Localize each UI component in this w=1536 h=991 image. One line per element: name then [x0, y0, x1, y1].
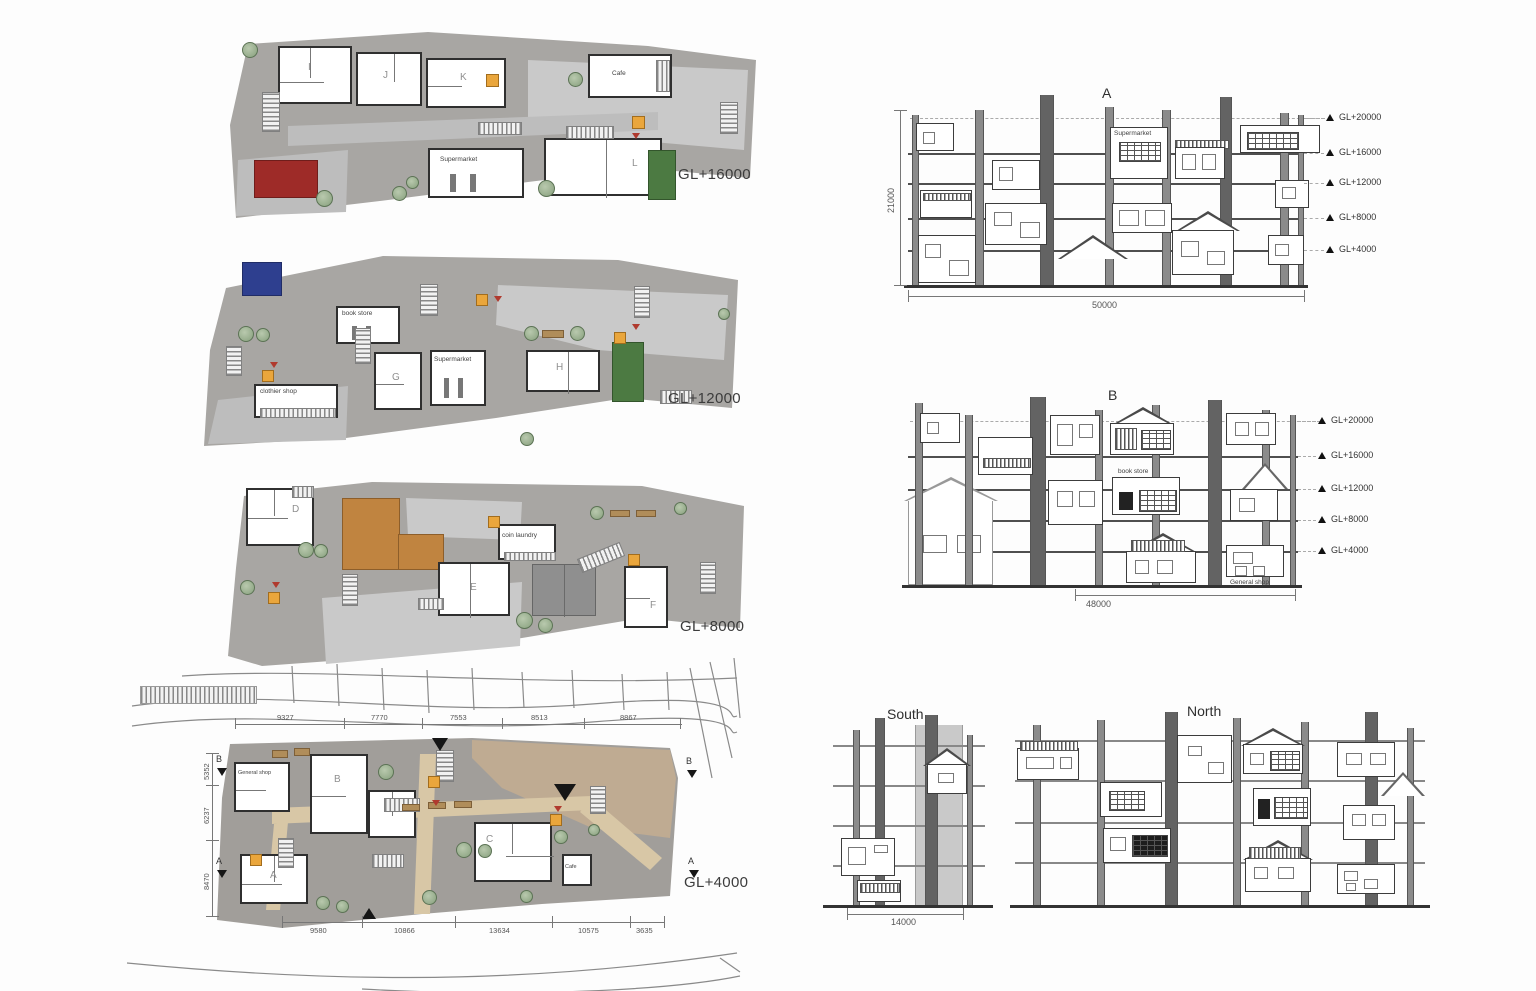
level-label: GL+4000 [1339, 244, 1376, 254]
roof-hatch [1020, 741, 1078, 751]
level-marker: GL+8000 [1326, 212, 1376, 222]
window [1253, 566, 1265, 576]
window [1020, 222, 1040, 238]
level-marker: GL+20000 [1318, 415, 1373, 425]
section-room-book-store [1112, 477, 1180, 515]
tree-icon [316, 190, 333, 207]
unit-label-i: I [308, 62, 311, 73]
section-b-title: B [1108, 387, 1117, 403]
column [965, 415, 973, 585]
book-store-label: book store [1118, 468, 1148, 475]
wall [376, 384, 404, 385]
level-label: GL+20000 [1331, 415, 1373, 425]
level-triangle-icon [1326, 114, 1334, 121]
window [999, 167, 1013, 181]
section-room [1275, 180, 1309, 208]
window [1364, 879, 1378, 889]
window [1079, 424, 1093, 438]
level-leader [1304, 218, 1324, 219]
section-room [918, 235, 976, 283]
section-width-dim: 48000 [1086, 599, 1111, 609]
site-plan-gl4000: General shop B A C Cafe [122, 658, 742, 991]
elevation-room [1243, 744, 1303, 774]
dim-label: 7770 [371, 713, 388, 722]
section-marker-icon [687, 770, 697, 778]
window-grid [1270, 751, 1300, 771]
window [1057, 491, 1073, 507]
window [1275, 244, 1289, 256]
wall [242, 884, 282, 885]
wall [428, 86, 462, 87]
gray-roof [532, 564, 596, 616]
dim-tick [664, 916, 665, 928]
level-triangle-icon [1326, 149, 1334, 156]
road-line [182, 673, 737, 680]
section-marker-icon [217, 870, 227, 878]
tree-icon [238, 326, 254, 342]
window [923, 535, 947, 553]
window [1344, 871, 1358, 881]
unit-label-f: F [650, 600, 656, 611]
red-arrow-marker [632, 133, 640, 139]
tree-icon [520, 890, 533, 903]
tree-icon [588, 824, 600, 836]
window [1057, 424, 1073, 446]
window [1181, 241, 1199, 257]
elevation-room [1337, 742, 1395, 777]
stairs [566, 126, 614, 139]
bench [272, 750, 288, 758]
red-arrow-marker [270, 362, 278, 368]
roof-ridge [564, 565, 565, 617]
dim-tick [344, 718, 345, 729]
tree-icon [256, 328, 270, 342]
dim-label: 10866 [394, 926, 415, 935]
window [1135, 560, 1149, 574]
level-triangle-icon [1326, 179, 1334, 186]
shelving-grid [1119, 142, 1161, 162]
lot-lines [292, 664, 669, 713]
tree-icon [718, 308, 730, 320]
level-leader [1304, 118, 1324, 119]
cafe-label: Cafe [565, 864, 577, 870]
section-room [1172, 230, 1234, 275]
dim-tick [206, 840, 219, 841]
book-store-label: book store [342, 310, 372, 317]
window-grid [1109, 791, 1145, 811]
planter [542, 330, 564, 338]
general-shop-label: General shop [1230, 579, 1269, 586]
unit-label-j: J [383, 70, 388, 81]
tree-icon [456, 842, 472, 858]
stairs [262, 92, 280, 132]
awning-hatch [860, 883, 900, 893]
unit-label-h: H [556, 362, 563, 373]
window [1233, 552, 1253, 564]
red-arrow-marker [432, 800, 440, 806]
level-triangle-icon [1318, 516, 1326, 523]
red-roof [254, 160, 318, 198]
room-unit-b [310, 754, 368, 834]
dim-tick [422, 718, 423, 729]
dim-label: 8867 [620, 713, 637, 722]
dim-tick [963, 908, 964, 920]
unit-label-g: G [392, 372, 400, 383]
dim-tick [235, 718, 236, 729]
tree-icon [298, 542, 314, 558]
dim-tick [847, 908, 848, 920]
road-line [127, 953, 737, 978]
stairs [418, 598, 444, 610]
column [1407, 728, 1414, 905]
tree-icon [520, 432, 534, 446]
level-label: GL+16000 [1339, 147, 1381, 157]
floor-plan-gl8000: D coin laundry E F [222, 478, 747, 668]
rack-hatch [260, 408, 336, 418]
dim-label: 3635 [636, 926, 653, 935]
bookshelf-grid [1139, 490, 1177, 512]
section-room [978, 437, 1033, 475]
elevation-room [841, 838, 895, 876]
section-width-dim: 50000 [1092, 300, 1117, 310]
tree-icon [524, 326, 539, 341]
window [1278, 867, 1294, 879]
section-room [1226, 413, 1276, 445]
elevator-marker [486, 74, 499, 87]
elevation-room [1343, 805, 1395, 840]
window [1060, 757, 1072, 769]
level-marker: GL+16000 [1318, 450, 1373, 460]
red-arrow-marker [554, 806, 562, 812]
room-unit-j [356, 52, 422, 106]
elevation-width-dim: 14000 [891, 917, 916, 927]
dim-label: 5352 [202, 763, 211, 780]
section-marker-b-left: B [216, 754, 222, 764]
level-label: GL+12000 [1339, 177, 1381, 187]
wall [506, 856, 554, 857]
stair-hatch [983, 458, 1031, 468]
level-triangle-icon [1318, 485, 1326, 492]
tree-icon [590, 506, 604, 520]
column [967, 735, 973, 905]
wall [274, 490, 275, 516]
dim-tick [1295, 589, 1296, 601]
level-leader [1298, 456, 1316, 457]
window [1255, 422, 1269, 436]
section-room [1048, 480, 1103, 525]
level-leader [1298, 489, 1316, 490]
shelf-hatch [656, 60, 670, 92]
dim-tick [908, 290, 909, 302]
level-marker: GL+16000 [1326, 147, 1381, 157]
level-label: GL+4000 [1331, 545, 1368, 555]
elevation-room [1177, 735, 1232, 783]
plan-level-label-gl16000: GL+16000 [678, 166, 751, 183]
core-column [925, 715, 938, 905]
dim-tick [894, 285, 907, 286]
shelf [470, 174, 476, 192]
window [1208, 762, 1224, 774]
section-room [1175, 147, 1225, 179]
window [1026, 757, 1054, 769]
stairs [720, 102, 738, 134]
column [975, 110, 984, 285]
shelf [444, 378, 449, 398]
planter [610, 510, 630, 517]
elevator-marker [550, 814, 562, 826]
section-room [1240, 125, 1320, 153]
shelf [450, 174, 456, 192]
orange-roof [342, 498, 400, 570]
section-height-dim: 21000 [886, 188, 896, 213]
stairs [342, 574, 358, 606]
ground-line [904, 285, 1308, 288]
window [1250, 753, 1264, 765]
dimension-line [282, 922, 664, 923]
room-cafe [562, 854, 592, 886]
core-column [875, 718, 885, 905]
dimension-line [212, 753, 213, 916]
wall [248, 518, 288, 519]
level-marker: GL+4000 [1318, 545, 1368, 555]
supermarket-label: Supermarket [1114, 130, 1151, 137]
level-leader [1298, 421, 1316, 422]
gable-roof [1245, 466, 1285, 489]
tree-icon [422, 890, 437, 905]
railing-hatch [923, 193, 971, 201]
dim-label: 6237 [202, 807, 211, 824]
tree-icon [674, 502, 687, 515]
level-label: GL+8000 [1339, 212, 1376, 222]
elevation-room [1103, 828, 1171, 863]
unit-label-b: B [334, 774, 341, 785]
wall [626, 598, 650, 599]
dim-tick [1075, 589, 1076, 601]
unit-label-a: A [270, 870, 277, 881]
dimension-line [900, 110, 901, 285]
tree-icon [516, 612, 533, 629]
tree-icon [538, 618, 553, 633]
dark-panel [1258, 799, 1270, 819]
shop-label: clothier shop [260, 388, 297, 395]
window [994, 212, 1012, 226]
shelf [458, 378, 463, 398]
wall [236, 790, 266, 791]
red-arrow-marker [632, 324, 640, 330]
elevation-room [1100, 782, 1162, 817]
dim-tick [630, 916, 631, 928]
section-room [985, 203, 1047, 245]
dim-tick [362, 916, 363, 928]
section-room [1050, 415, 1100, 455]
tree-icon [392, 186, 407, 201]
green-terrace [648, 150, 676, 200]
level-marker: GL+12000 [1326, 177, 1381, 187]
section-room [992, 160, 1040, 190]
level-label: GL+20000 [1339, 112, 1381, 122]
window [1119, 210, 1139, 226]
room-unit-l [544, 138, 662, 196]
level-triangle-icon [1318, 452, 1326, 459]
wall [568, 352, 569, 394]
laundry-label: coin laundry [502, 532, 537, 539]
level-triangle-icon [1318, 417, 1326, 424]
elevator-marker [488, 516, 500, 528]
dim-tick [680, 718, 681, 729]
stairs [420, 284, 438, 316]
elevation-south: South 14000 [815, 700, 1005, 928]
dim-label: 10575 [578, 926, 599, 935]
level-label: GL+16000 [1331, 450, 1373, 460]
window [927, 422, 939, 434]
section-room [920, 413, 960, 443]
south-title: South [887, 706, 924, 722]
dim-tick [206, 916, 219, 917]
sidewalk-hatch [140, 686, 257, 704]
window [848, 847, 866, 865]
section-room [1230, 489, 1278, 521]
dim-label: 7553 [450, 713, 467, 722]
core-column [1040, 95, 1054, 285]
window [938, 773, 954, 783]
road-line [690, 658, 740, 778]
dark-panel [1119, 492, 1133, 510]
floor-plan-gl16000: I J K Cafe Supermarket L [228, 30, 758, 230]
wall [312, 796, 346, 797]
stairs [278, 838, 294, 868]
dimension-line [908, 296, 1305, 297]
elevator-marker [262, 370, 274, 382]
dim-label: 8513 [531, 713, 548, 722]
elevator-marker [632, 116, 645, 129]
section-b: B book store General shop [890, 385, 1445, 620]
bench [294, 748, 310, 756]
road-line [132, 718, 737, 733]
window [925, 244, 941, 258]
window [1188, 746, 1202, 756]
tree-icon [568, 72, 583, 87]
window [1235, 566, 1247, 576]
elevator-marker [268, 592, 280, 604]
window [1202, 154, 1216, 170]
window [1372, 814, 1386, 826]
tree-icon [378, 764, 394, 780]
stairs [292, 486, 314, 498]
tree-icon [316, 896, 330, 910]
cafe-label: Cafe [612, 70, 626, 77]
level-leader [1304, 183, 1324, 184]
road-line [362, 976, 740, 991]
level-marker: GL+12000 [1318, 483, 1373, 493]
wall [606, 140, 607, 198]
level-leader [1304, 250, 1324, 251]
plan-level-label-gl8000: GL+8000 [680, 618, 744, 635]
section-a: A Supermarket 210 [880, 85, 1440, 320]
elevation-room [857, 880, 901, 902]
tree-icon [314, 544, 328, 558]
tree-icon [478, 844, 492, 858]
section-room [1268, 235, 1304, 265]
window [1110, 837, 1126, 851]
louver-hatch [1115, 428, 1137, 450]
window [1346, 753, 1362, 765]
core-column [1030, 397, 1046, 585]
elevation-room [927, 764, 967, 794]
section-a-title: A [1102, 85, 1111, 101]
window [1157, 560, 1173, 574]
elevation-room [1337, 864, 1395, 894]
red-arrow-marker [272, 582, 280, 588]
window [923, 132, 935, 144]
window [1235, 422, 1249, 436]
level-marker: GL+20000 [1326, 112, 1381, 122]
level-leader [1298, 551, 1316, 552]
window-grid [1141, 430, 1171, 450]
dim-tick [552, 916, 553, 928]
column [1233, 718, 1241, 905]
tree-icon [240, 580, 255, 595]
dim-label: 9327 [277, 713, 294, 722]
elevation-room [1253, 788, 1311, 826]
architectural-presentation-sheet: I J K Cafe Supermarket L GL+16000 book [0, 0, 1536, 991]
floor-plan-gl12000: book store clothier shop G Supermarket H [198, 250, 743, 450]
column [853, 730, 860, 905]
plan-level-label-gl12000: GL+12000 [668, 390, 741, 407]
wall [280, 82, 324, 83]
supermarket-label: Supermarket [434, 356, 471, 363]
unit-label-e: E [470, 582, 477, 593]
roof-hatch [1249, 847, 1301, 859]
stairs [478, 122, 522, 135]
column [1290, 415, 1296, 585]
window [1282, 187, 1296, 199]
core-column [1208, 400, 1222, 585]
elevator-marker [614, 332, 626, 344]
dim-label: 9580 [310, 926, 327, 935]
elevator-marker [628, 554, 640, 566]
dim-tick [584, 718, 585, 729]
section-room [916, 123, 954, 151]
elevator-marker [428, 776, 440, 788]
section-marker-a-right: A [688, 856, 694, 866]
north-title: North [1187, 703, 1221, 719]
wall [394, 54, 395, 82]
bench [402, 804, 420, 811]
dim-tick [1304, 290, 1305, 302]
tree-icon [570, 326, 585, 341]
unit-label-l: L [632, 158, 638, 169]
tree-icon [242, 42, 258, 58]
section-room [1110, 423, 1174, 455]
gable-roof [1384, 775, 1422, 796]
section-room [1126, 551, 1196, 583]
dim-tick [455, 916, 456, 928]
window [1079, 491, 1095, 507]
level-triangle-icon [1326, 214, 1334, 221]
section-marker-icon [217, 768, 227, 776]
elevation-room [1245, 858, 1311, 892]
tree-icon [538, 180, 555, 197]
window [1145, 210, 1165, 226]
machines-hatch [504, 552, 556, 561]
wall [512, 824, 513, 854]
dimension-line [235, 724, 682, 725]
window [949, 260, 969, 276]
window-grid [1247, 132, 1299, 150]
red-arrow-marker [494, 296, 502, 302]
dimension-line [847, 914, 963, 915]
bench [454, 801, 472, 808]
